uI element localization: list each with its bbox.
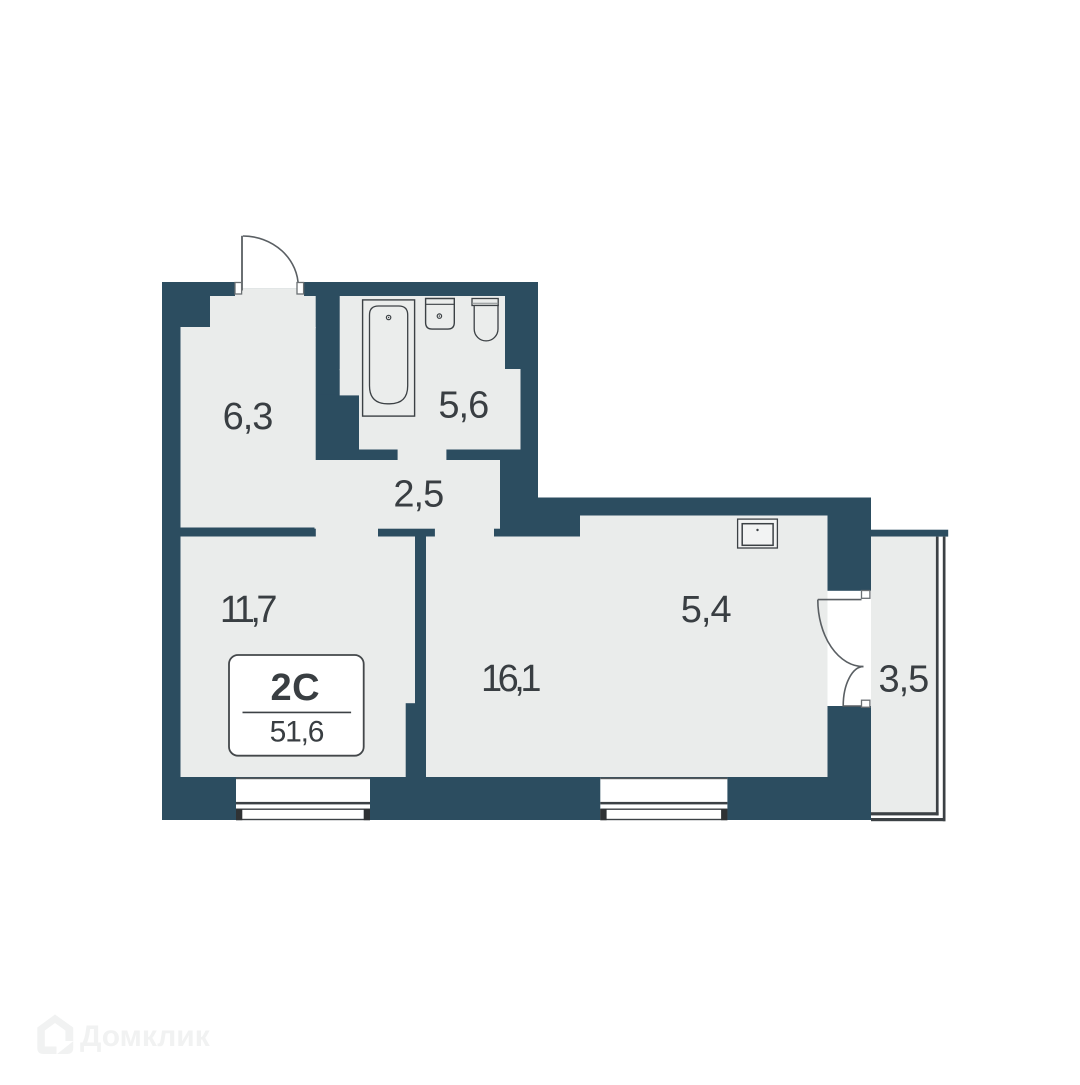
svg-text:11,7: 11,7 bbox=[220, 589, 277, 631]
svg-text:2C: 2C bbox=[271, 667, 321, 709]
svg-text:Домклик: Домклик bbox=[80, 1020, 211, 1053]
svg-text:5,4: 5,4 bbox=[681, 589, 732, 631]
svg-text:5,6: 5,6 bbox=[438, 385, 488, 427]
svg-text:16,1: 16,1 bbox=[481, 658, 540, 700]
svg-text:2,5: 2,5 bbox=[393, 474, 443, 516]
svg-text:51,6: 51,6 bbox=[270, 716, 324, 749]
svg-text:6,3: 6,3 bbox=[223, 396, 273, 438]
svg-text:3,5: 3,5 bbox=[878, 659, 928, 701]
